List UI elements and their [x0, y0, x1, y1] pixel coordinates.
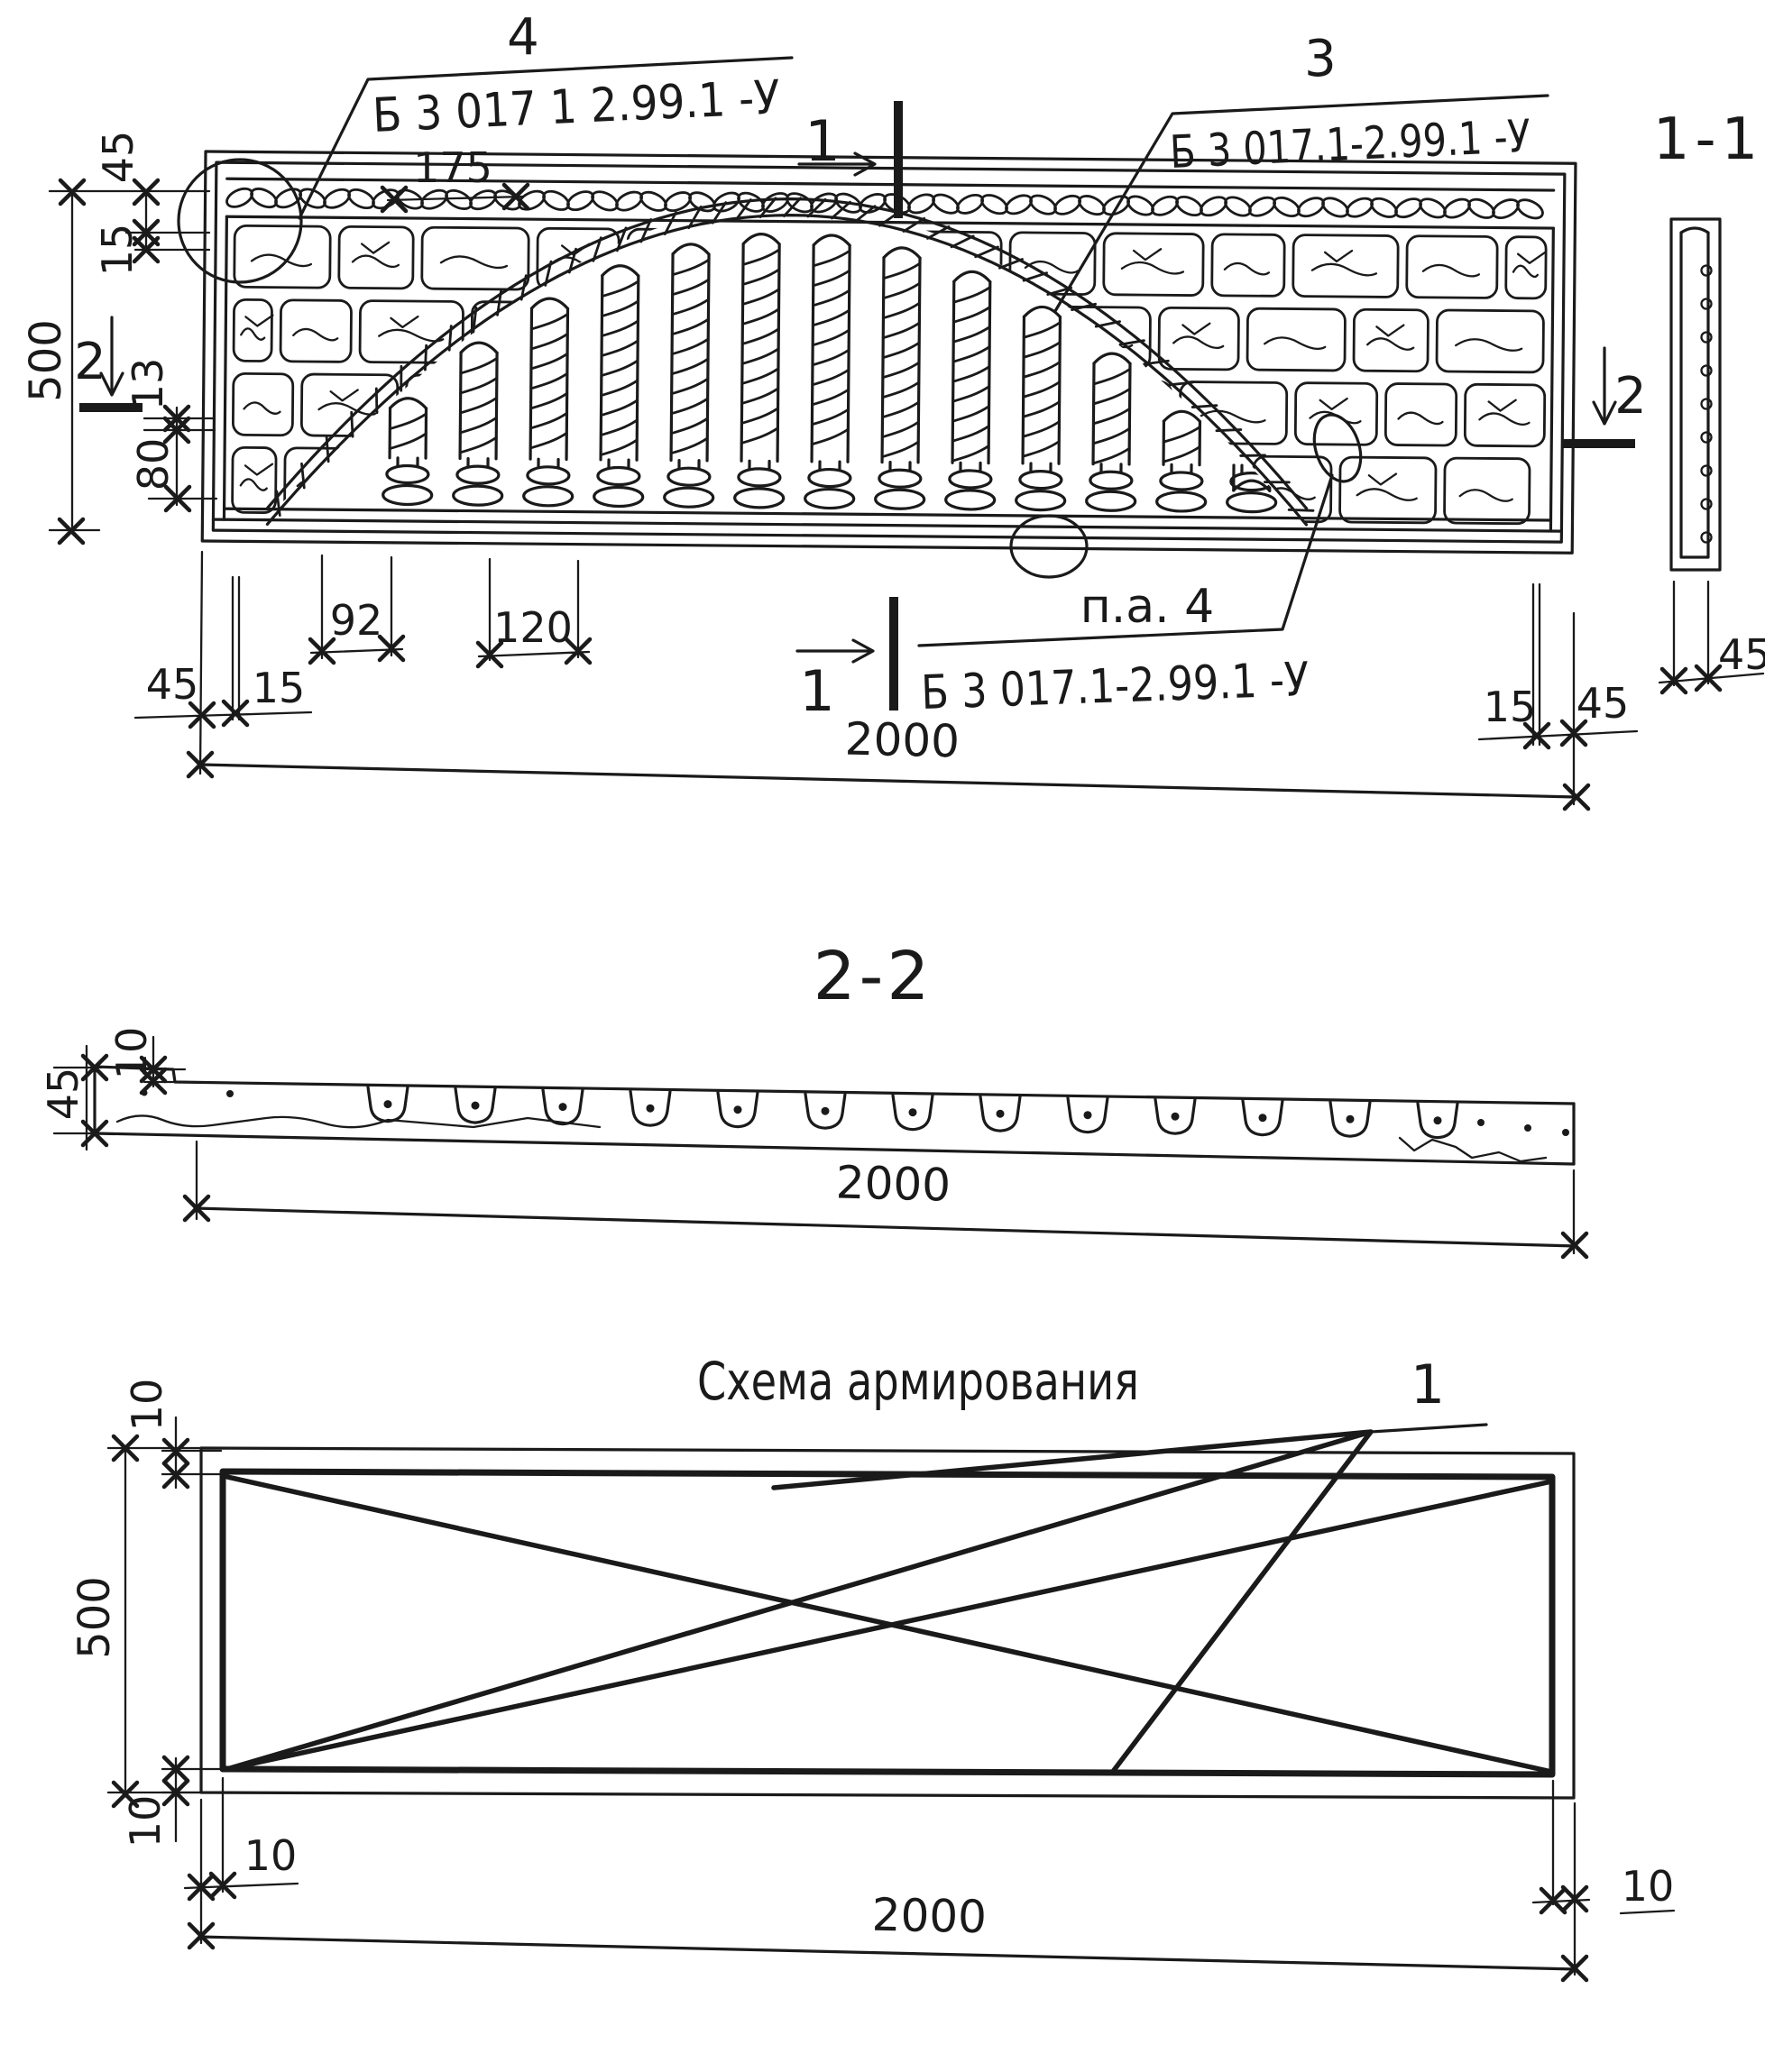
edge-bump: [1702, 266, 1712, 276]
baluster: [665, 244, 716, 508]
dim-45-top-left: 45: [94, 131, 142, 184]
rope-twist-icon: [1319, 195, 1350, 221]
dim-2000-2-2: 2000: [835, 1156, 951, 1211]
rope-twist-icon: [1149, 193, 1180, 218]
rope-twist-icon: [540, 188, 571, 214]
edge-bump: [1702, 333, 1712, 343]
strip-top-edge: [95, 1067, 1574, 1104]
strip-bottom-edge: [95, 1133, 1574, 1164]
dim-line-2000: [195, 1208, 1577, 1246]
stone-block: [1444, 458, 1530, 524]
callout-4: 4 Б 3 017 1 2.99.1 -У: [299, 8, 792, 218]
socket-dot: [1477, 1119, 1485, 1126]
dim-10-bottom-left-h: 10: [244, 1831, 298, 1880]
detail-oval-bottom: [1011, 516, 1087, 577]
callout-4-ref: 4: [507, 8, 539, 67]
section-cut-2-right: 2: [1563, 348, 1647, 444]
baluster: [876, 248, 927, 509]
socket-dot: [1347, 1115, 1355, 1123]
baluster: [1157, 411, 1207, 511]
edge-bump: [1702, 299, 1712, 309]
rope-twist-icon: [857, 190, 887, 215]
edge-bump: [1702, 533, 1712, 543]
callout-pa4: п.а. 4 Б 3 017.1-2.99.1 -У: [919, 475, 1332, 720]
baluster: [383, 399, 433, 505]
socket-dot: [472, 1102, 480, 1110]
socket-dot: [1434, 1116, 1442, 1124]
rope-twist-icon: [1222, 194, 1253, 220]
bar-callout-1: 1: [1371, 1353, 1486, 1432]
balusters: [383, 231, 1279, 512]
dim-92: 92: [330, 596, 383, 645]
rope-twist-icon: [321, 186, 352, 211]
baluster: [735, 234, 786, 508]
socket-dot: [1172, 1113, 1180, 1121]
bar-callout-leader: [1371, 1425, 1486, 1432]
stone-block: [301, 374, 398, 436]
reinforcement-scheme: Схема армирования 1 10 500 10 10 10 2000: [69, 1351, 1674, 1975]
dim-10-top-left: 10: [123, 1379, 171, 1432]
callout-3-ref: 3: [1304, 30, 1337, 88]
panel-bottom-rails: [213, 509, 1561, 531]
detail-ellipse-right: [1306, 408, 1368, 487]
stone-block: [1247, 308, 1346, 371]
stone-block: [1407, 236, 1498, 298]
section-1-1-label: 1-1: [1653, 106, 1764, 173]
stone-block: [902, 380, 982, 442]
dim-2000-scheme: 2000: [871, 1889, 987, 1944]
stone-block: [1295, 383, 1377, 445]
rope-twist-icon: [1003, 192, 1034, 217]
baluster: [454, 343, 504, 505]
socket-dot: [226, 1090, 234, 1097]
stone-block: [500, 376, 600, 438]
section-cut-1-bottom: 1: [797, 597, 894, 724]
dim-500-scheme: 500: [69, 1576, 120, 1659]
rope-twist-icon: [905, 191, 936, 216]
rope-twist-icon: [1076, 192, 1107, 218]
stone-block: [1104, 234, 1204, 296]
section-2-2-title: 2-2: [814, 938, 933, 1015]
dimension-ticks: [60, 180, 1720, 1980]
callout-pa4-ref: п.а. 4: [1080, 580, 1215, 634]
stone-block: [280, 300, 352, 362]
baluster: [805, 235, 857, 509]
rope-twist-icon: [638, 188, 668, 215]
socket-dot: [909, 1108, 917, 1116]
socket-dot: [822, 1107, 830, 1115]
baluster: [1016, 307, 1067, 510]
rope-twist-icon: [248, 185, 279, 211]
scanned-drawing-page: 4 Б 3 017 1 2.99.1 -У 3 Б 3 017.1-2.99.1…: [0, 0, 1765, 2072]
strip-crack-right: [1400, 1138, 1546, 1161]
stone-block: [1354, 309, 1429, 371]
rope-twist-icon: [1514, 197, 1545, 223]
stone-block: [339, 226, 414, 289]
stone-block: [1212, 234, 1285, 297]
rope-twist-icon: [1125, 193, 1155, 219]
rope-twist-icon: [589, 188, 620, 215]
stone-block: [1385, 383, 1457, 445]
callout-3-code: Б 3 017.1-2.99.1 -У: [1169, 110, 1531, 179]
rope-twist-icon: [1198, 194, 1228, 219]
section-1-1-outline: [1671, 219, 1720, 570]
baluster: [594, 266, 645, 507]
edge-bump: [1702, 399, 1712, 409]
stone-block: [1159, 307, 1239, 370]
panel-side-rails: [224, 216, 1553, 531]
dim-45-2-2: 45: [39, 1068, 87, 1121]
section-1-1-view: 1-1 45: [1653, 106, 1765, 685]
dim-15-bottom-right: 15: [1484, 683, 1537, 731]
stone-block: [233, 447, 277, 512]
stone-block: [233, 373, 293, 435]
dim-13-left: 13: [124, 358, 172, 411]
rope-twist-icon: [613, 188, 644, 214]
dim-175: 175: [413, 143, 492, 192]
rope-twist-icon: [565, 188, 595, 213]
rope-twist-icon: [1173, 193, 1204, 219]
reinforcement-dimensions: 10 500 10 10 10 2000: [69, 1379, 1674, 1975]
rope-twist-icon: [1417, 196, 1448, 222]
socket-dot: [1084, 1111, 1092, 1119]
rope-twist-icon: [1344, 195, 1374, 220]
stone-block: [472, 302, 550, 364]
rope-twist-icon: [224, 185, 254, 210]
baluster: [946, 271, 997, 509]
stone-block: [1339, 457, 1436, 523]
rope-twist-icon: [1246, 194, 1277, 219]
section-cut-2-left-label: 2: [74, 333, 106, 391]
edge-bump: [1702, 500, 1712, 509]
elevation-view: 4 Б 3 017 1 2.99.1 -У 3 Б 3 017.1-2.99.1…: [21, 8, 1765, 804]
bar-callout-ref: 1: [1411, 1353, 1445, 1416]
dim-120: 120: [493, 603, 573, 652]
section-cut-2-right-label: 2: [1614, 367, 1647, 426]
callout-4-code: Б 3 017 1 2.99.1 -У: [372, 71, 781, 143]
rope-twist-icon: [954, 191, 985, 216]
reinforcement-title: Схема армирования: [697, 1351, 1139, 1412]
socket-dot: [1524, 1124, 1531, 1132]
section-1-1-bumps: [1702, 266, 1712, 543]
rope-twist-icon: [1368, 195, 1399, 221]
socket-dot: [1259, 1114, 1267, 1122]
baluster: [1227, 465, 1276, 512]
stone-block: [234, 225, 331, 288]
dim-500-left: 500: [21, 319, 71, 402]
rope-twist-icon: [1100, 193, 1131, 218]
panel-artwork: [202, 151, 1576, 553]
dim-2000-elevation: 2000: [844, 713, 961, 768]
baluster: [524, 298, 575, 506]
dim-15-top-left: 15: [93, 224, 142, 277]
stone-block: [422, 227, 529, 289]
callout-pa4-code: Б 3 017.1-2.99.1 -У: [920, 653, 1310, 720]
stone-block: [865, 305, 938, 367]
rope-twist-icon: [1441, 196, 1472, 221]
edge-bump: [1702, 466, 1712, 476]
rope-twist-icon: [345, 186, 376, 212]
stone-block: [1293, 235, 1399, 298]
socket-dot: [734, 1105, 742, 1114]
dim-10-bottom-left-v: 10: [121, 1795, 170, 1848]
strip-crack-left: [117, 1115, 600, 1127]
socket-dot: [647, 1105, 655, 1113]
dim-10-bottom-right: 10: [1622, 1862, 1675, 1911]
rope-twist-icon: [1271, 194, 1301, 220]
rope-twist-icon: [1027, 192, 1058, 218]
edge-bump: [1702, 366, 1712, 376]
stone-block: [1437, 310, 1544, 372]
section-2-2-view: 2-2 45 10 2000: [39, 938, 1577, 1253]
rope-twist-icon: [1490, 196, 1521, 221]
rope-twist-icon: [930, 191, 961, 217]
dim-45-under-1-1: 45: [1718, 630, 1765, 679]
rope-twist-icon: [1393, 196, 1423, 221]
dim-ext-500: [108, 1446, 207, 1794]
socket-dot: [997, 1110, 1005, 1118]
arch-lower-line: [267, 211, 1309, 534]
stone-block: [1465, 384, 1545, 446]
socket-dot: [384, 1100, 392, 1108]
stone-block: [1097, 381, 1172, 444]
baluster-sockets: [142, 1087, 1570, 1138]
stone-block: [285, 448, 358, 514]
section-cut-1-bottom-label: 1: [799, 658, 834, 724]
rope-twist-icon: [1466, 196, 1496, 222]
technical-drawing: 4 Б 3 017 1 2.99.1 -У 3 Б 3 017.1-2.99.1…: [0, 0, 1765, 2072]
dim-15-bottom-left: 15: [253, 664, 306, 712]
rope-twist-icon: [1052, 192, 1082, 217]
dim-line-175: [388, 197, 523, 200]
rope-twist-icon: [1295, 195, 1326, 220]
edge-bump: [1702, 433, 1712, 443]
dim-line-2000: [200, 765, 1577, 797]
socket-dot: [1562, 1129, 1569, 1136]
dim-tick-icon: [224, 701, 247, 725]
dim-line-2000: [199, 1937, 1577, 1969]
rope-arch: [267, 194, 1316, 534]
rebar-diagonals: [227, 1432, 1548, 1773]
rope-twist-icon: [979, 191, 1009, 217]
baluster: [1087, 353, 1137, 511]
socket-dot: [559, 1103, 567, 1111]
dim-80-left: 80: [129, 438, 178, 491]
